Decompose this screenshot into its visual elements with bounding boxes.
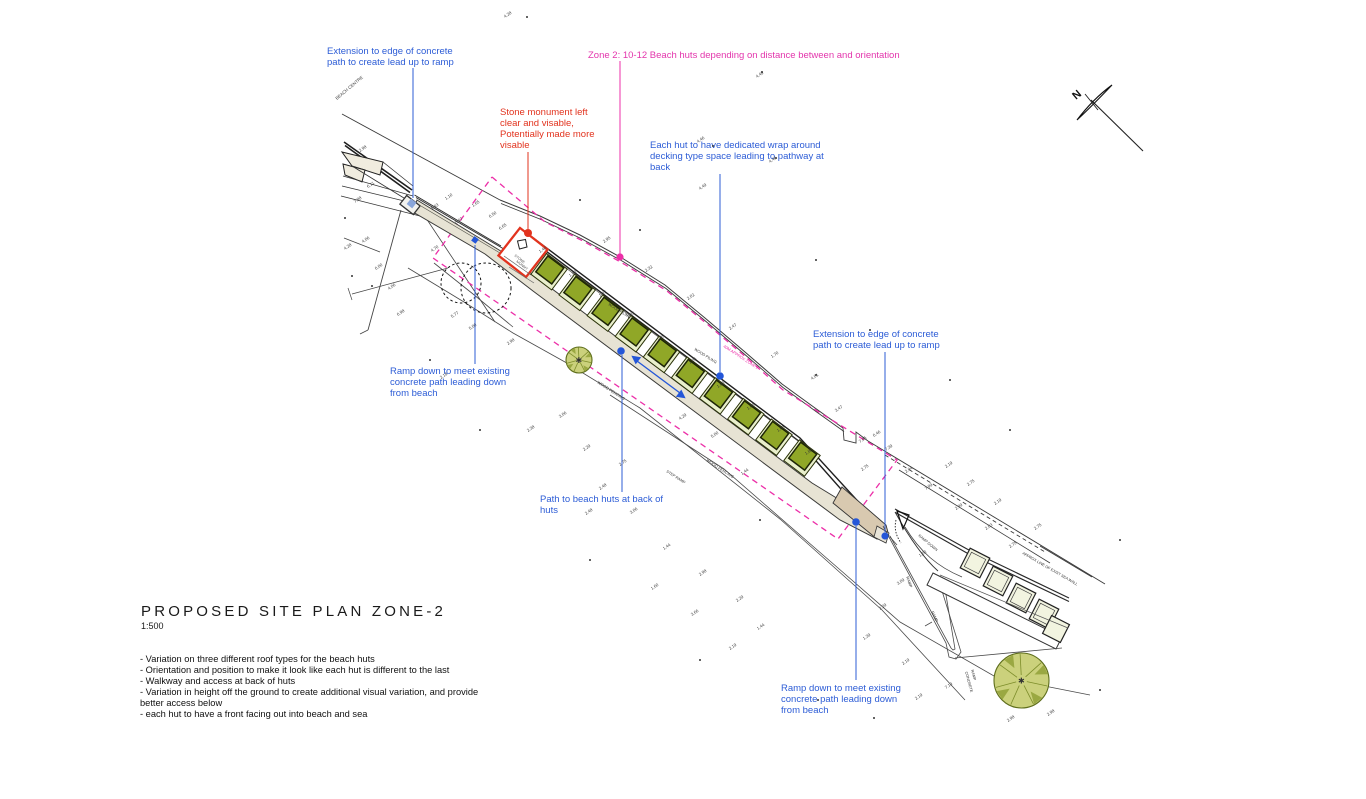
svg-text:Ramp down to meet existing: Ramp down to meet existing [390, 366, 510, 377]
svg-text:Path to beach huts at back of: Path to beach huts at back of [540, 494, 663, 505]
svg-text:huts: huts [540, 505, 558, 516]
svg-text:✱: ✱ [1018, 677, 1025, 686]
svg-text:Extension to edge of concrete: Extension to edge of concrete [327, 46, 453, 57]
svg-text:Each hut to have dedicated wra: Each hut to have dedicated wrap around [650, 140, 821, 151]
svg-text:- Walkway and access at back o: - Walkway and access at back of huts [140, 676, 296, 686]
svg-text:PROPOSED SITE PLAN ZONE-2: PROPOSED SITE PLAN ZONE-2 [141, 603, 446, 620]
svg-text:from beach: from beach [781, 705, 829, 716]
svg-text:clear and visable,: clear and visable, [500, 118, 574, 129]
svg-text:decking type space leading to: decking type space leading to pathway at [650, 151, 824, 162]
svg-text:concrete path leading down: concrete path leading down [390, 377, 506, 388]
svg-text:path to create lead up to ramp: path to create lead up to ramp [813, 340, 940, 351]
svg-text:Extension to edge of concrete: Extension to edge of concrete [813, 329, 939, 340]
svg-text:✱: ✱ [576, 356, 583, 365]
svg-text:1:500: 1:500 [141, 621, 164, 631]
svg-text:back: back [650, 162, 670, 173]
svg-text:- Variation on three different: - Variation on three different roof type… [140, 654, 375, 664]
svg-text:from beach: from beach [390, 388, 438, 399]
svg-text:Stone monument left: Stone monument left [500, 107, 588, 118]
svg-text:Potentially made more: Potentially made more [500, 129, 595, 140]
svg-text:visable: visable [500, 140, 530, 151]
svg-text:Ramp down to meet existing: Ramp down to meet existing [781, 683, 901, 694]
svg-text:path to create lead up to ramp: path to create lead up to ramp [327, 57, 454, 68]
svg-text:Zone 2: 10-12 Beach huts depen: Zone 2: 10-12 Beach huts depending on di… [588, 50, 900, 61]
svg-text:concrete path leading down: concrete path leading down [781, 694, 897, 705]
svg-text:better access below: better access below [140, 698, 222, 708]
svg-text:- each hut to have a front fac: - each hut to have a front facing out in… [140, 709, 368, 719]
svg-text:- Variation in height off the: - Variation in height off the ground to … [140, 687, 478, 697]
svg-text:- Orientation and position to: - Orientation and position to make it lo… [140, 665, 450, 675]
